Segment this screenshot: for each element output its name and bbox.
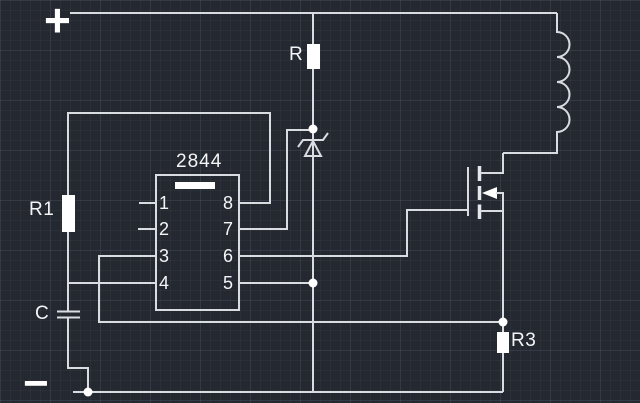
schematic-drawing — [0, 0, 640, 403]
junction-dot-pin5 — [309, 279, 318, 288]
schematic-canvas: + − R R1 C R3 2844 1 2 3 4 8 7 6 5 — [0, 0, 640, 403]
negative-terminal-symbol: − — [23, 362, 49, 403]
junction-dot-ground — [84, 388, 93, 397]
label-ic-part-number: 2844 — [176, 152, 222, 171]
inductor-coil — [503, 13, 570, 153]
resistor-r-body — [307, 44, 320, 69]
label-resistor-r1: R1 — [29, 200, 54, 219]
ic-pin-1: 1 — [159, 194, 169, 212]
positive-terminal-symbol: + — [44, 0, 71, 43]
ic-notch-mark — [175, 182, 215, 189]
ic-pin-3: 3 — [159, 247, 169, 265]
ic-pin-5: 5 — [223, 274, 233, 292]
ic-pin-6: 6 — [223, 247, 233, 265]
capacitor-c — [57, 312, 80, 318]
resistor-r3 — [497, 322, 509, 392]
wire-pin6-to-gate — [239, 210, 468, 256]
ic-pin-8: 8 — [223, 194, 233, 212]
wire-cap-to-ground — [68, 317, 88, 392]
ic-pin-2: 2 — [159, 220, 169, 238]
label-resistor-r: R — [289, 45, 303, 64]
label-capacitor-c: C — [35, 304, 49, 323]
junction-dot-zener — [309, 125, 318, 134]
mosfet-body-wire — [496, 193, 503, 211]
label-resistor-r3: R3 — [511, 331, 536, 350]
junction-dot-r3 — [499, 318, 508, 327]
resistor-r1-body — [62, 195, 75, 232]
mosfet-body-arrow — [482, 187, 497, 199]
mosfet-drain-wire — [480, 153, 503, 173]
resistor-r3-body — [497, 332, 509, 353]
ic-pin-4: 4 — [159, 274, 169, 292]
ic-pin-7: 7 — [223, 220, 233, 238]
n-channel-mosfet — [468, 153, 503, 322]
